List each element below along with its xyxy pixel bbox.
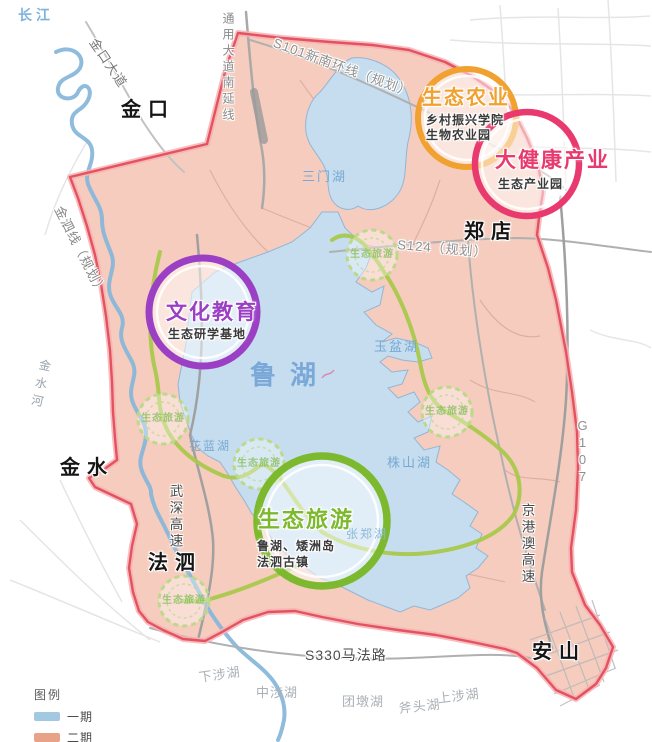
eco-marker-label-5: 生态旅游 [160, 596, 208, 606]
tuandun-lake-label: 团墩湖 [342, 695, 384, 708]
eco-marker-label-3: 生态旅游 [348, 250, 396, 260]
legend-swatch-phase1 [34, 712, 60, 721]
yupen-lake-label: 玉盆湖 [374, 340, 419, 353]
zone-sub-health-industry-1: 生态产业园 [498, 178, 563, 190]
legend-label-phase1: 一期 [67, 708, 93, 725]
zone-title-health-industry: 大健康产业 [495, 150, 610, 171]
hualan-lake-label: 花蓝湖 [189, 440, 231, 452]
zone-title-eco-agriculture: 生态农业 [422, 88, 510, 108]
town-label-zhengdian: 郑店 [464, 222, 518, 242]
legend-swatch-phase2 [34, 733, 60, 742]
g107-road-label: G107 [576, 418, 589, 486]
legend-item-phase2: 二期 [34, 729, 93, 742]
town-label-jinkou: 金口 [121, 100, 175, 120]
yangtze-river-label: 长江 [18, 8, 54, 22]
legend-label-phase2: 二期 [67, 729, 93, 742]
legend-title: 图例 [34, 686, 93, 703]
jinggangao-expressway-label: 京港澳高速 [520, 503, 534, 586]
zone-sub-eco-tourism-2: 法泗古镇 [257, 556, 309, 568]
zone-title-eco-tourism: 生态旅游 [258, 509, 354, 531]
planning-map: 长江 金口大道 通用大道南延线 S101新南环线（规划） 金泗线（规划） S12… [0, 0, 652, 742]
eco-marker-label-2: 生态旅游 [235, 459, 283, 469]
town-label-anshan: 安山 [532, 642, 586, 662]
eco-marker-label-4: 生态旅游 [423, 407, 471, 417]
lu-lake-label: 鲁湖 [250, 362, 330, 388]
eco-marker-label-1: 生态旅游 [139, 414, 187, 424]
zhushan-lake-label: 株山湖 [387, 456, 432, 469]
sanmen-lake-label: 三门湖 [302, 170, 347, 183]
zone-sub-eco-tourism-1: 鲁湖、矮洲岛 [257, 540, 335, 552]
legend-item-phase1: 一期 [34, 708, 93, 725]
town-label-fasi: 法泗 [148, 553, 202, 573]
tongyong-avenue-label: 通用大道南延线 [222, 12, 234, 124]
zone-sub-eco-agriculture-1: 乡村振兴学院 [426, 114, 504, 126]
wushen-expressway-label: 武深高速 [168, 484, 182, 550]
town-label-jinshui: 金水 [60, 458, 114, 478]
legend: 图例 一期 二期 [34, 686, 93, 742]
zone-title-culture-education: 文化教育 [166, 302, 258, 323]
zone-sub-eco-agriculture-2: 生物农业园 [426, 129, 491, 141]
s330-road-label: S330马法路 [305, 648, 387, 662]
zhongshe-lake-label: 中涉湖 [256, 686, 298, 699]
zone-sub-culture-education-1: 生态研学基地 [168, 328, 246, 340]
